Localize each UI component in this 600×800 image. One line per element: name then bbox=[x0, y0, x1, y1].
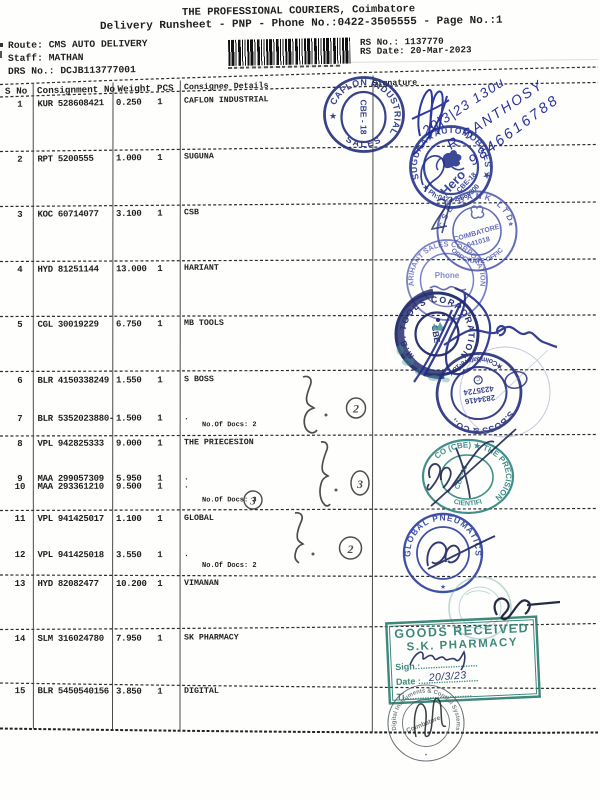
svg-text:2: 2 bbox=[352, 402, 359, 416]
svg-text:SCIENTIFIC: SCIENTIFIC bbox=[0, 0, 483, 508]
svg-text:GLOBAL PNEUMATICS: GLOBAL PNEUMATICS bbox=[402, 513, 483, 557]
svg-text:2: 2 bbox=[347, 542, 354, 556]
svg-text:3: 3 bbox=[249, 496, 256, 508]
svg-text:Coimbatore: Coimbatore bbox=[405, 714, 441, 734]
svg-text:SALES: SALES bbox=[344, 134, 384, 149]
svg-text:C: C bbox=[475, 375, 480, 381]
svg-text:★: ★ bbox=[440, 583, 446, 591]
svg-text:•: • bbox=[424, 752, 428, 759]
svg-text:Phone: Phone bbox=[435, 271, 460, 280]
svg-text:3: 3 bbox=[356, 477, 363, 491]
svg-text:★: ★ bbox=[329, 112, 337, 122]
svg-text:★: ★ bbox=[508, 220, 514, 228]
svg-text:CBE - 18: CBE - 18 bbox=[359, 100, 369, 135]
